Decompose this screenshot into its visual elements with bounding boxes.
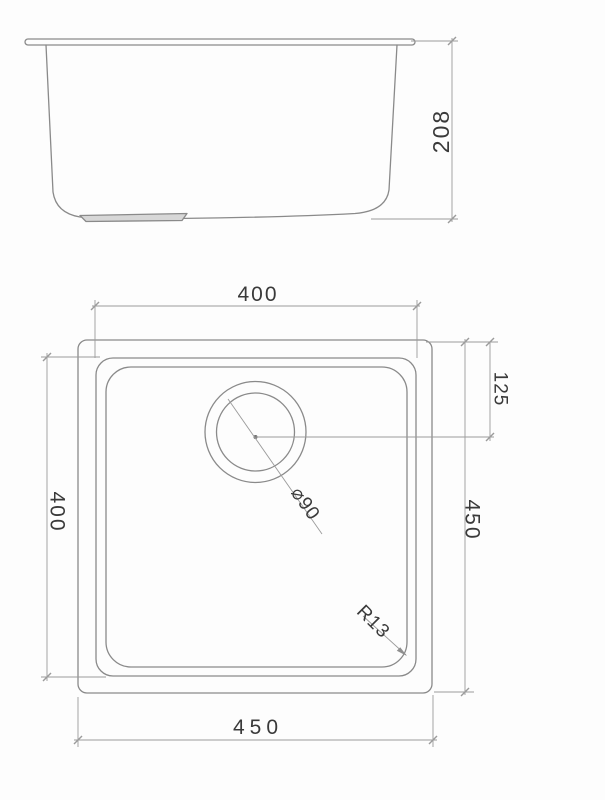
sink-body-side-profile — [46, 45, 397, 218]
dim-text-bowl-width: 400 — [237, 283, 278, 306]
drawing-canvas: 208 400 400 450 125 450 ⌀90 R13 — [0, 0, 605, 800]
label-corner-radius: R13 — [352, 601, 394, 643]
side-view — [25, 39, 415, 222]
dimension-texts: 208 400 400 450 125 450 ⌀90 R13 — [46, 109, 511, 739]
sink-technical-drawing: 208 400 400 450 125 450 ⌀90 R13 — [0, 0, 605, 800]
dim-text-depth: 208 — [428, 109, 454, 153]
drain-strip-side-profile — [80, 214, 187, 222]
drain-inner-circle — [217, 393, 295, 471]
dim-text-drain-offset: 125 — [490, 372, 511, 407]
dim-text-overall-length: 450 — [461, 499, 484, 540]
dim-text-bowl-length: 400 — [46, 491, 69, 532]
label-drain-diameter: ⌀90 — [286, 483, 324, 524]
drain-outer-circle — [205, 382, 306, 483]
dim-text-overall-width: 450 — [233, 716, 283, 739]
sink-rim-side-profile — [25, 39, 415, 45]
